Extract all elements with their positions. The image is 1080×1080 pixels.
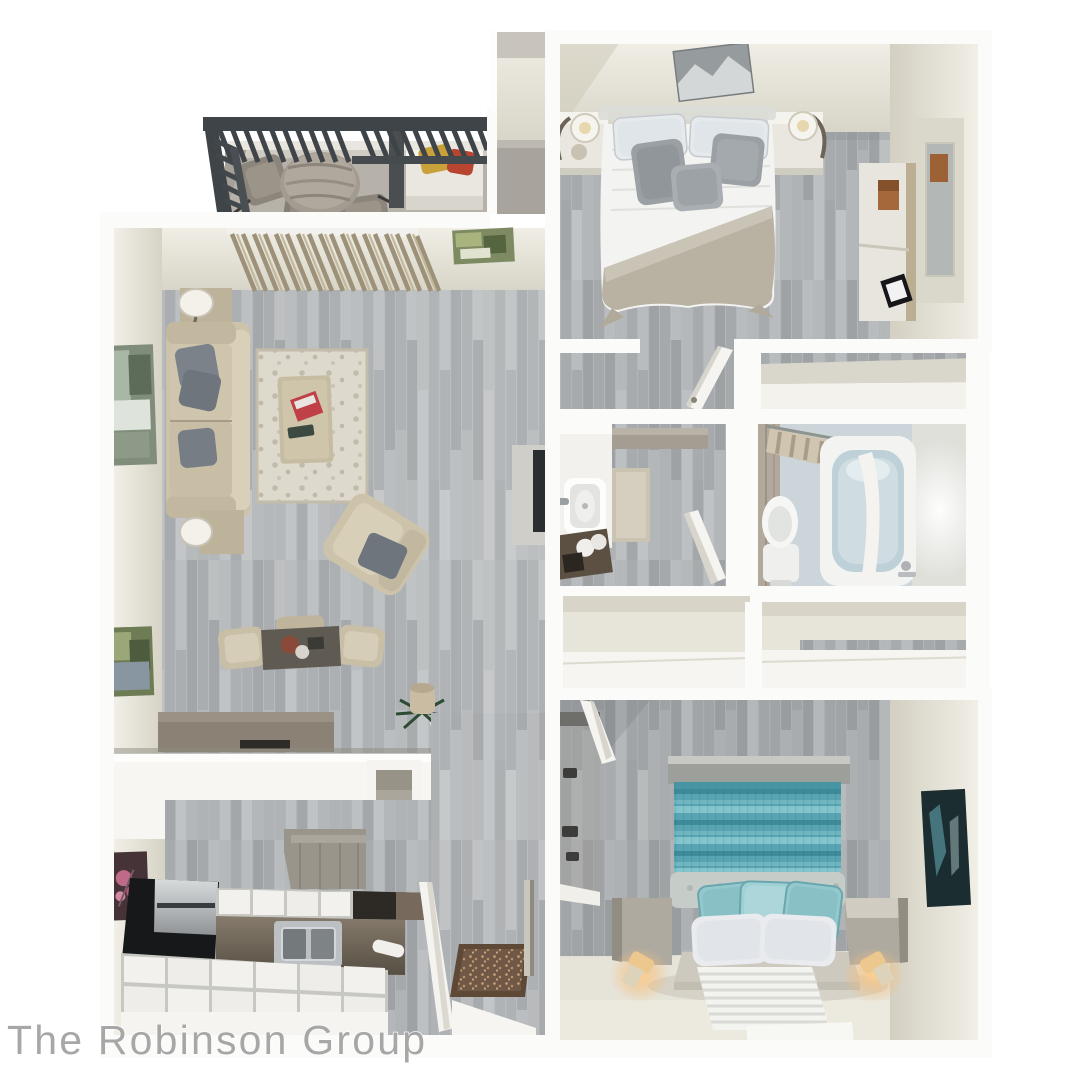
- svg-text:The Robinson Group: The Robinson Group: [7, 1017, 427, 1063]
